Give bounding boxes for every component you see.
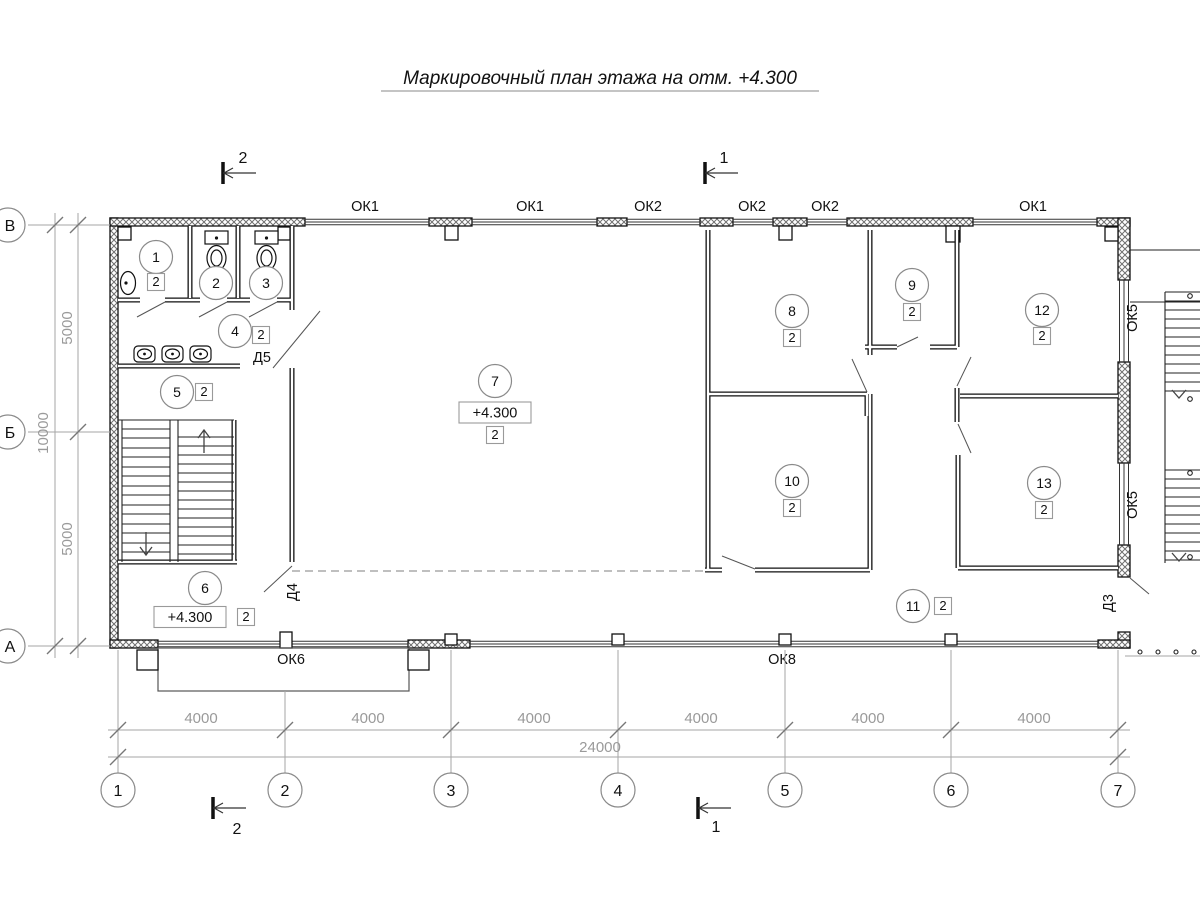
window-label-top-6: ОК1 — [1019, 199, 1047, 215]
axis-col-2: 2 — [281, 783, 290, 800]
room-10-number: 10 — [784, 473, 800, 489]
dim-bay-4: 4000 — [684, 710, 717, 727]
floor-plan-drawing: Маркировочный план этажа на отм. +4.300 — [0, 0, 1200, 900]
section-1-top-label: 1 — [720, 150, 729, 167]
dim-bay-6: 4000 — [1017, 710, 1050, 727]
window-label-top-4: ОК2 — [738, 199, 766, 215]
external-stair-treads-lower — [1165, 470, 1200, 560]
stairwell — [118, 420, 234, 562]
room-6-number: 6 — [201, 580, 209, 596]
dimensions: 4000 4000 4000 4000 4000 4000 24000 5000… — [35, 311, 1051, 756]
room-8-number: 8 — [788, 303, 796, 319]
room-3-number: 3 — [262, 275, 270, 291]
window-glazing — [158, 219, 1129, 647]
sink-icons — [134, 346, 211, 362]
section-1-bottom-label: 1 — [712, 819, 721, 836]
room-5-number: 5 — [173, 384, 181, 400]
window-label-bottom-1: ОК6 — [277, 652, 305, 668]
dim-bay-2: 4000 — [351, 710, 384, 727]
axis-row-b: Б — [5, 425, 16, 442]
room-10-mark: 2 — [788, 500, 795, 515]
room-7-number: 7 — [491, 373, 499, 389]
window-label-top-2: ОК1 — [516, 199, 544, 215]
room-13-mark: 2 — [1040, 502, 1047, 517]
door-label-d5: Д5 — [253, 350, 271, 366]
room-1-mark: 2 — [152, 274, 159, 289]
axis-row-a: А — [5, 639, 16, 656]
axis-col-5: 5 — [781, 783, 790, 800]
dim-left-bay-1: 5000 — [59, 311, 76, 344]
toilet-icon — [205, 231, 228, 271]
room-7-elevation: +4.300 — [473, 406, 518, 422]
axis-col-1: 1 — [114, 783, 123, 800]
axis-col-3: 3 — [447, 783, 456, 800]
room-1-number: 1 — [152, 249, 160, 265]
grid-lines — [28, 213, 1130, 773]
dim-bay-5: 4000 — [851, 710, 884, 727]
window-label-top-5: ОК2 — [811, 199, 839, 215]
room-12-mark: 2 — [1038, 328, 1045, 343]
room-13-number: 13 — [1036, 475, 1052, 491]
room-2-number: 2 — [212, 275, 220, 291]
section-2-bottom-label: 2 — [233, 821, 242, 838]
door-label-d3: Д3 — [1101, 594, 1117, 612]
door-swings — [137, 302, 1149, 594]
stair-arrow-up — [198, 430, 210, 453]
window-label-top-3: ОК2 — [634, 199, 662, 215]
axis-row-v: В — [5, 218, 16, 235]
dim-left-bay-2: 5000 — [59, 522, 76, 555]
door-label-d4: Д4 — [285, 583, 301, 601]
axis-col-6: 6 — [947, 783, 956, 800]
stair-treads-right — [178, 437, 234, 554]
room-9-number: 9 — [908, 277, 916, 293]
room-11-number: 11 — [906, 598, 921, 614]
window-label-right-2: ОК5 — [1125, 491, 1141, 519]
window-label-right-1: ОК5 — [1125, 304, 1141, 332]
section-2-top-label: 2 — [239, 150, 248, 167]
dim-bay-3: 4000 — [517, 710, 550, 727]
drawing-title: Маркировочный план этажа на отм. +4.300 — [403, 68, 797, 89]
dim-bay-1: 4000 — [184, 710, 217, 727]
room-5-mark: 2 — [200, 384, 207, 399]
dim-left-total: 10000 — [35, 412, 52, 454]
basin-icon — [121, 272, 136, 295]
opening-labels: ОК1 ОК1 ОК2 ОК2 ОК2 ОК1 ОК5 ОК5 ОК6 ОК8 … — [253, 199, 1141, 668]
external-stair-arrows — [1172, 390, 1186, 561]
room-11-mark: 2 — [939, 598, 946, 613]
room-6-elevation: +4.300 — [168, 610, 213, 626]
room-9-mark: 2 — [908, 304, 915, 319]
room-6-mark: 2 — [242, 609, 249, 624]
toilet-icon — [255, 231, 278, 271]
room-12-number: 12 — [1034, 302, 1050, 318]
door-jamb — [280, 632, 292, 648]
room-7-mark: 2 — [491, 427, 498, 442]
room-8-mark: 2 — [788, 330, 795, 345]
window-label-top-1: ОК1 — [351, 199, 379, 215]
axis-col-4: 4 — [614, 783, 623, 800]
external-stair-treads-upper — [1165, 292, 1200, 391]
room-4-mark: 2 — [257, 327, 264, 342]
room-4-number: 4 — [231, 323, 239, 339]
axis-col-7: 7 — [1114, 783, 1123, 800]
dim-total: 24000 — [579, 739, 621, 756]
window-label-bottom-2: ОК8 — [768, 652, 796, 668]
